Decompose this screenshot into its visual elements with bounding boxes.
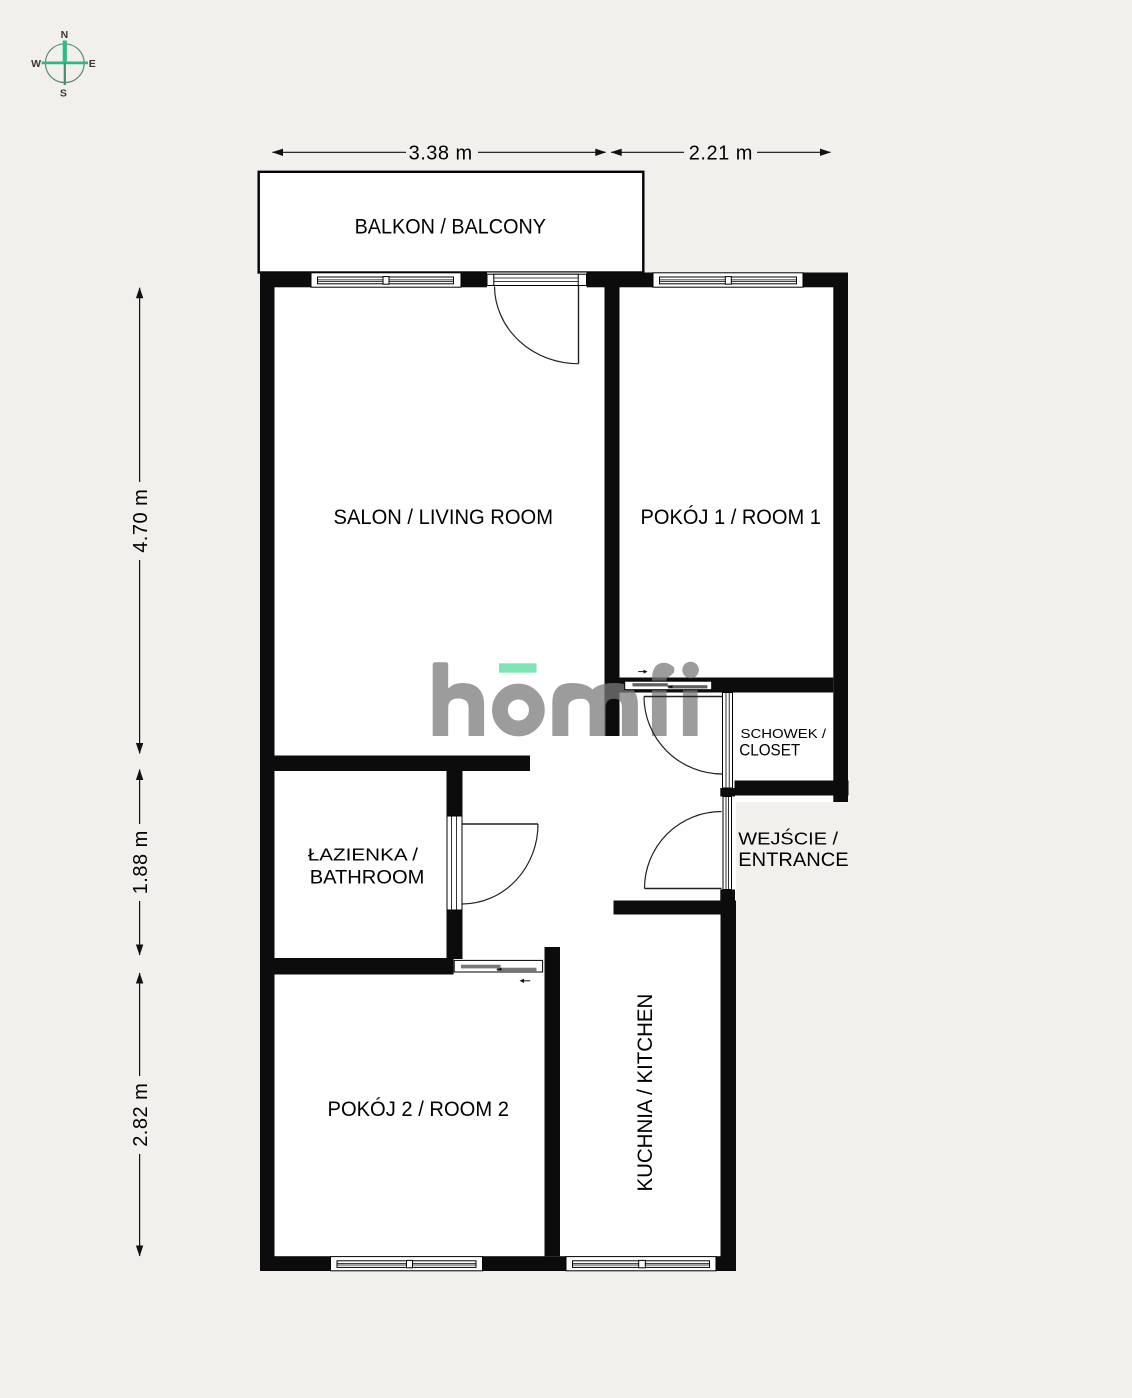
svg-text:SCHOWEK /: SCHOWEK / xyxy=(741,726,827,741)
svg-text:4.70 m: 4.70 m xyxy=(130,489,152,553)
svg-text:E: E xyxy=(89,58,96,70)
svg-text:CLOSET: CLOSET xyxy=(739,742,800,760)
svg-text:N: N xyxy=(61,29,69,41)
svg-text:POKÓJ 2 / ROOM 2: POKÓJ 2 / ROOM 2 xyxy=(328,1097,509,1120)
svg-text:3.38 m: 3.38 m xyxy=(409,142,473,164)
svg-text:1.88 m: 1.88 m xyxy=(130,831,152,895)
svg-text:2.82 m: 2.82 m xyxy=(130,1083,152,1147)
svg-text:BATHROOM: BATHROOM xyxy=(310,867,425,889)
svg-text:SALON / LIVING ROOM: SALON / LIVING ROOM xyxy=(334,506,554,529)
svg-text:KUCHNIA / KITCHEN: KUCHNIA / KITCHEN xyxy=(634,994,657,1192)
svg-text:ŁAZIENKA /: ŁAZIENKA / xyxy=(308,845,419,865)
svg-text:ENTRANCE: ENTRANCE xyxy=(738,849,848,871)
svg-text:S: S xyxy=(60,87,67,99)
svg-text:W: W xyxy=(31,58,41,70)
svg-text:POKÓJ 1 / ROOM 1: POKÓJ 1 / ROOM 1 xyxy=(641,506,821,530)
svg-text:WEJŚCIE /: WEJŚCIE / xyxy=(738,828,839,849)
svg-text:BALKON / BALCONY: BALKON / BALCONY xyxy=(355,216,547,239)
svg-text:2.21 m: 2.21 m xyxy=(689,142,753,164)
